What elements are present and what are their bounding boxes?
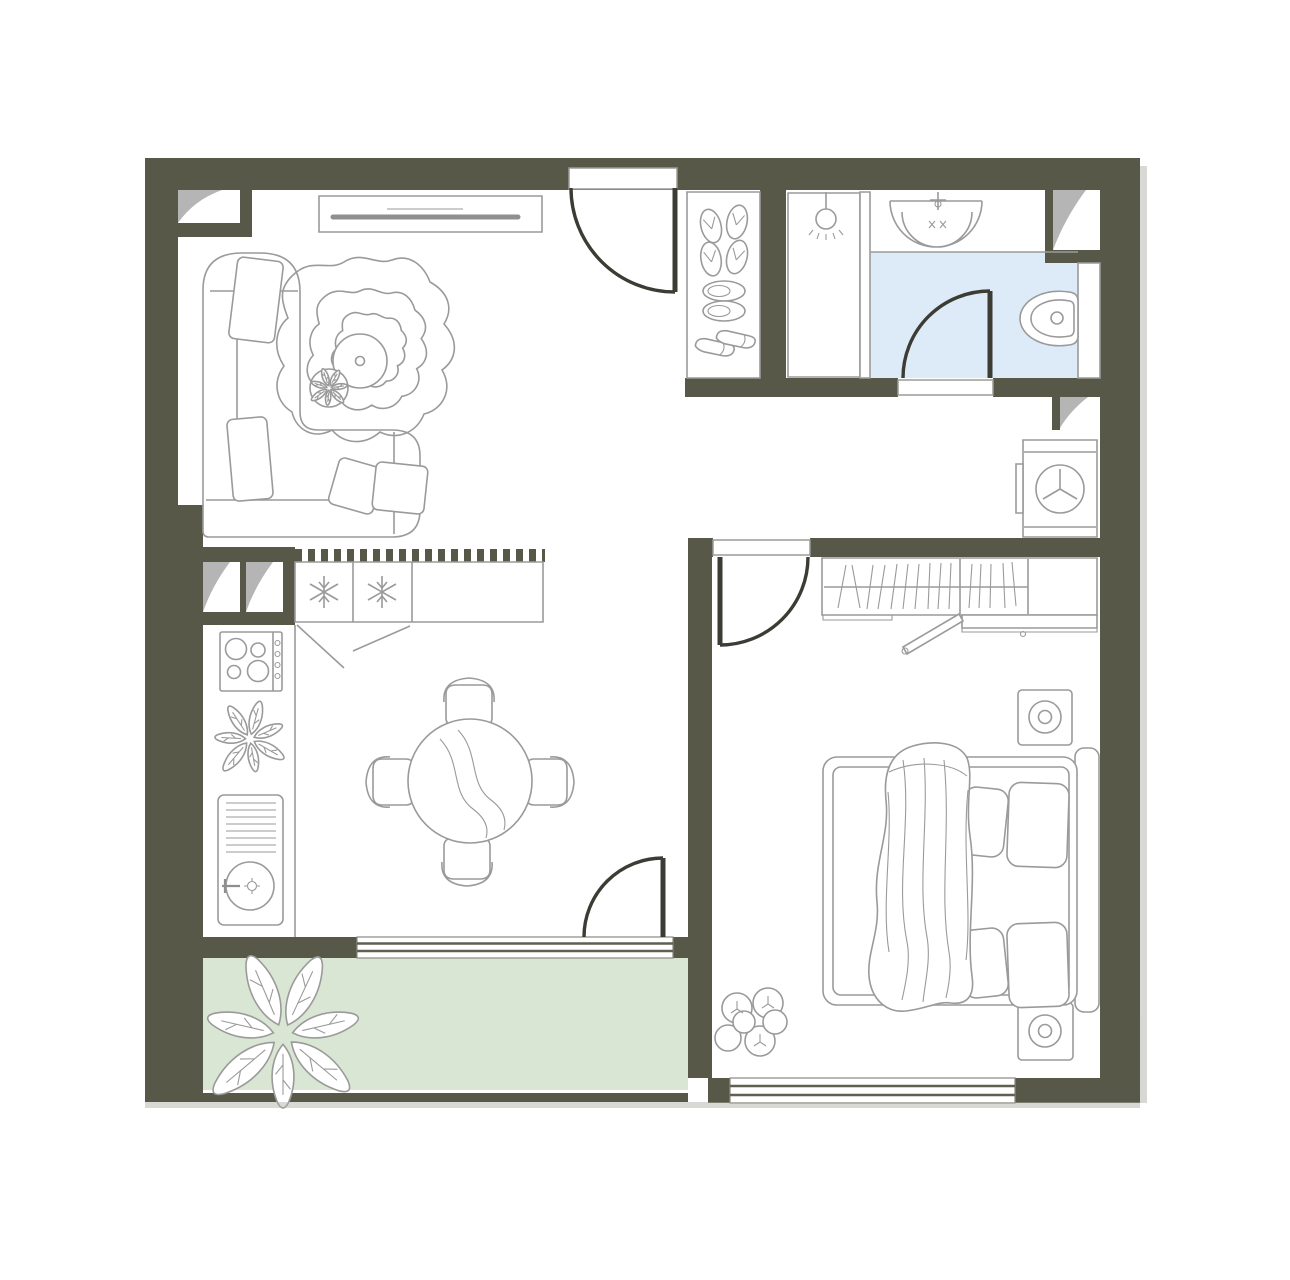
slipper-icon bbox=[703, 301, 745, 321]
fridge-counter bbox=[295, 562, 543, 622]
washer-drawer bbox=[1016, 464, 1023, 513]
sofa-cushion bbox=[372, 461, 429, 514]
wall-bathroom-south-a bbox=[685, 378, 898, 397]
headboard bbox=[1075, 748, 1099, 1012]
kitchen-balcony-window bbox=[357, 937, 673, 958]
sofa-cushion bbox=[228, 257, 284, 344]
wall-vent-stub-2 bbox=[178, 223, 252, 237]
wall-vent-stub-3 bbox=[1045, 190, 1053, 250]
dining-chair bbox=[442, 838, 492, 886]
dining-set bbox=[366, 678, 574, 886]
wall-bedroom-south bbox=[1015, 1078, 1140, 1103]
toilet-tank-niche bbox=[1078, 263, 1100, 378]
drain-icon bbox=[929, 221, 946, 228]
bedroom-window bbox=[730, 1078, 1015, 1103]
floor-plan-page: One-bedroom apartment floor plan (top-do… bbox=[0, 0, 1290, 1280]
tv-console bbox=[319, 196, 542, 232]
dining-chair bbox=[526, 757, 574, 807]
bedroom-floor-plant bbox=[715, 988, 787, 1056]
entrance-threshold bbox=[569, 168, 677, 189]
bedroom-door bbox=[720, 557, 808, 645]
open-sliding-door bbox=[903, 614, 963, 654]
balcony-railing bbox=[145, 1093, 688, 1102]
utility-niche bbox=[1016, 440, 1097, 537]
glass-partition bbox=[860, 192, 870, 378]
bedroom-threshold bbox=[713, 540, 810, 555]
dining-table bbox=[408, 719, 532, 843]
back-cushion bbox=[1007, 922, 1070, 1008]
double-bed bbox=[823, 743, 1099, 1012]
entrance-door bbox=[571, 188, 675, 292]
bathroom-threshold bbox=[898, 380, 993, 395]
vent-shaft-kitchen-1 bbox=[203, 562, 240, 612]
kitchen-plant-icon bbox=[206, 692, 298, 787]
cabinet-open-lines bbox=[297, 625, 410, 668]
wardrobe bbox=[822, 558, 1097, 654]
wall-shower-divider bbox=[760, 190, 786, 378]
stove bbox=[220, 632, 282, 691]
nightstand-bottom bbox=[1018, 1003, 1073, 1060]
vent-shaft-utility bbox=[1060, 397, 1098, 428]
wall-bedroom-north-b bbox=[810, 538, 1100, 557]
bedroom bbox=[715, 558, 1099, 1060]
dining-chair bbox=[366, 757, 414, 807]
kitchen-sink-unit bbox=[218, 795, 283, 925]
balcony-door bbox=[584, 858, 663, 937]
wall-divider-foot bbox=[708, 1078, 730, 1103]
living-room bbox=[203, 196, 542, 537]
wall-vent-stub-5 bbox=[1052, 393, 1060, 430]
sofa-cushion bbox=[227, 416, 274, 501]
pendant-light-icon bbox=[809, 192, 843, 240]
back-cushion bbox=[1007, 782, 1070, 868]
vent-shaft-kitchen-2 bbox=[246, 562, 283, 612]
wall-left-upper bbox=[145, 158, 178, 508]
slipper-icon bbox=[703, 281, 745, 301]
wall-bathroom-south-b bbox=[993, 378, 1100, 397]
vent-shaft-living bbox=[178, 190, 240, 223]
backsplash-hatch-strip bbox=[295, 549, 545, 562]
washing-machine bbox=[1016, 440, 1097, 537]
washbasin bbox=[890, 192, 982, 247]
wall-right bbox=[1100, 158, 1140, 1103]
entrance-hall bbox=[687, 192, 760, 378]
dresser-shelf bbox=[962, 615, 1097, 628]
wall-kitchen-south bbox=[203, 937, 357, 958]
nightstand-top bbox=[1018, 690, 1072, 745]
wall-divider-kitchen-bedroom bbox=[688, 538, 712, 1078]
vent-shaft-bathroom bbox=[1053, 190, 1098, 250]
